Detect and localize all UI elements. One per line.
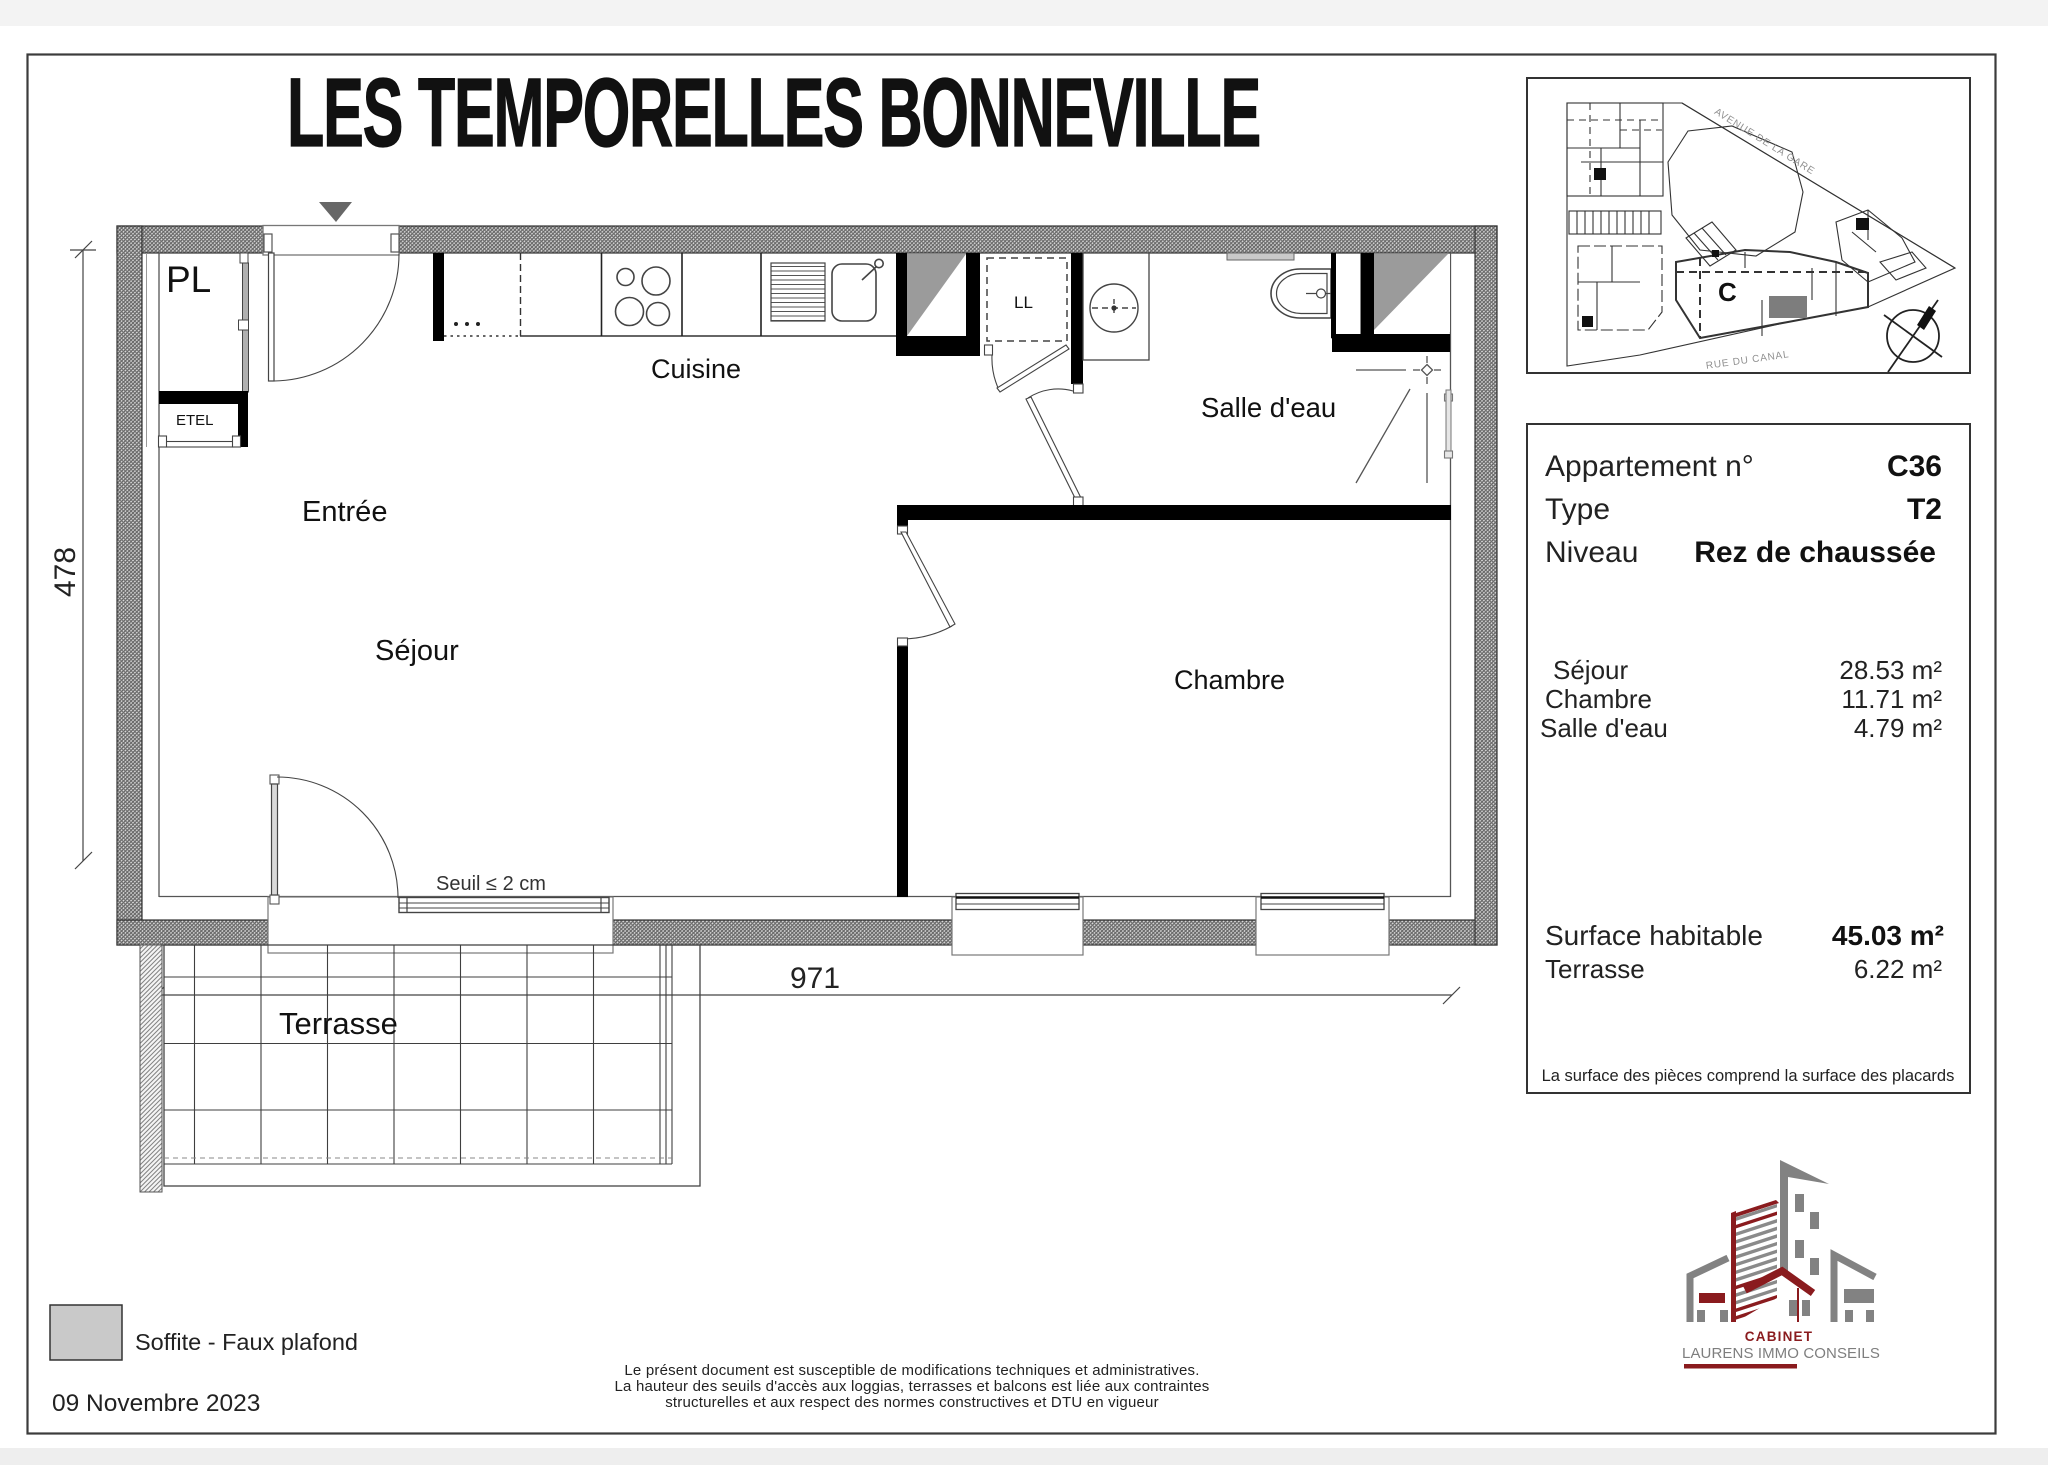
- svg-text:Rez de chaussée: Rez de chaussée: [1694, 536, 1936, 569]
- svg-text:LES TEMPORELLES BONNEVILLE: LES TEMPORELLES BONNEVILLE: [287, 58, 1260, 167]
- svg-text:Seuil ≤ 2 cm: Seuil ≤ 2 cm: [436, 873, 546, 895]
- svg-text:CABINET: CABINET: [1745, 1329, 1813, 1344]
- svg-text:LAURENS IMMO CONSEILS: LAURENS IMMO CONSEILS: [1682, 1345, 1880, 1362]
- svg-text:Séjour: Séjour: [1553, 655, 1628, 685]
- svg-text:Entrée: Entrée: [302, 496, 387, 528]
- svg-text:La hauteur des seuils d'accès: La hauteur des seuils d'accès aux loggia…: [615, 1378, 1210, 1395]
- svg-text:Terrasse: Terrasse: [279, 1006, 398, 1041]
- svg-text:Surface habitable: Surface habitable: [1545, 920, 1763, 951]
- svg-text:Soffite - Faux plafond: Soffite - Faux plafond: [135, 1329, 358, 1355]
- svg-text:Salle d'eau: Salle d'eau: [1201, 392, 1336, 423]
- svg-text:Appartement n°: Appartement n°: [1545, 450, 1754, 483]
- svg-text:Le présent document est suscep: Le présent document est susceptible de m…: [624, 1362, 1199, 1379]
- svg-text:Séjour: Séjour: [375, 635, 459, 667]
- svg-text:28.53 m²: 28.53 m²: [1839, 655, 1942, 685]
- svg-text:ETEL: ETEL: [176, 412, 214, 429]
- svg-text:45.03 m²: 45.03 m²: [1832, 920, 1944, 951]
- svg-text:6.22 m²: 6.22 m²: [1854, 954, 1942, 984]
- svg-text:Chambre: Chambre: [1174, 665, 1285, 695]
- svg-text:4.79 m²: 4.79 m²: [1854, 713, 1942, 743]
- svg-text:C36: C36: [1887, 450, 1942, 483]
- svg-text:Chambre: Chambre: [1545, 684, 1652, 714]
- svg-text:La surface des pièces comprend: La surface des pièces comprend la surfac…: [1542, 1067, 1955, 1085]
- svg-text:Type: Type: [1545, 493, 1610, 526]
- svg-text:478: 478: [49, 547, 82, 597]
- svg-text:structurelles et aux respect d: structurelles et aux respect des normes …: [665, 1394, 1159, 1411]
- svg-text:PL: PL: [166, 259, 211, 300]
- svg-text:Terrasse: Terrasse: [1545, 954, 1645, 984]
- svg-text:Cuisine: Cuisine: [651, 354, 741, 384]
- svg-text:Niveau: Niveau: [1545, 536, 1638, 569]
- svg-text:09 Novembre 2023: 09 Novembre 2023: [52, 1390, 260, 1417]
- svg-text:LL: LL: [1014, 293, 1033, 312]
- svg-text:11.71 m²: 11.71 m²: [1841, 684, 1942, 714]
- svg-text:Salle d'eau: Salle d'eau: [1540, 713, 1668, 743]
- svg-text:T2: T2: [1907, 493, 1942, 526]
- svg-text:C: C: [1718, 277, 1737, 307]
- svg-text:971: 971: [790, 962, 840, 995]
